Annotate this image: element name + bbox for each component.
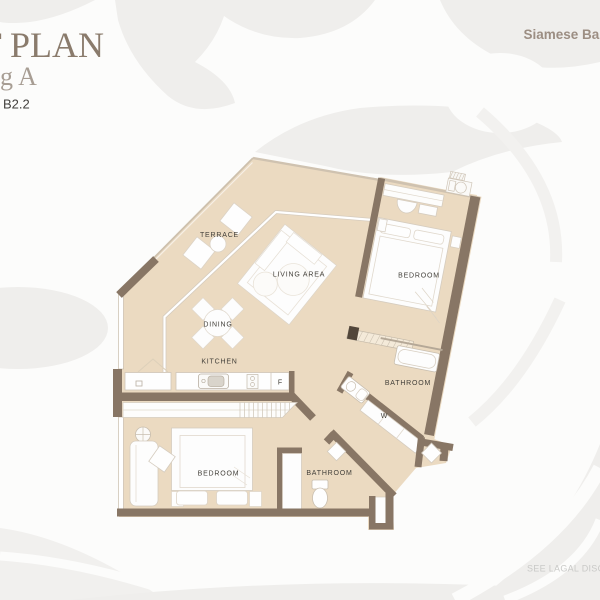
- svg-text:TERRACE: TERRACE: [200, 232, 239, 239]
- svg-text:KITCHEN: KITCHEN: [201, 359, 237, 366]
- svg-text:F: F: [278, 380, 282, 387]
- svg-text:BEDROOM: BEDROOM: [198, 471, 240, 478]
- svg-text:BEDROOM: BEDROOM: [398, 273, 440, 280]
- svg-text:DINING: DINING: [203, 322, 232, 329]
- svg-text:B2.2: B2.2: [3, 97, 30, 112]
- svg-text:SEE LAGAL DISCLAIMER: SEE LAGAL DISCLAIMER: [527, 564, 600, 574]
- svg-text:LIVING AREA: LIVING AREA: [273, 272, 325, 279]
- svg-text:W: W: [381, 413, 388, 420]
- svg-text:UNIT PLAN: UNIT PLAN: [0, 25, 104, 65]
- svg-text:BATHROOM: BATHROOM: [385, 380, 431, 387]
- svg-text:Building A: Building A: [0, 62, 37, 91]
- svg-text:BATHROOM: BATHROOM: [306, 470, 352, 477]
- svg-text:Siamese Bangkok: Siamese Bangkok: [524, 27, 600, 42]
